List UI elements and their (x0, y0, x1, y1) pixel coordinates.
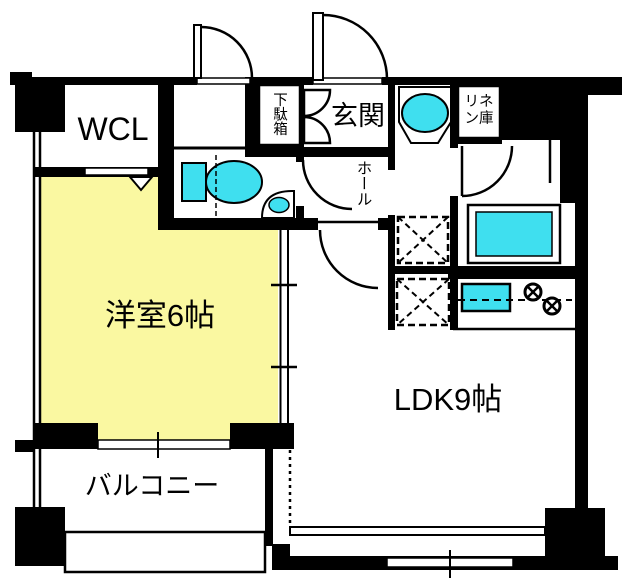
washing-machine-space (398, 217, 448, 263)
wall-segment (500, 77, 622, 95)
entrance-label: 玄関 (331, 101, 385, 131)
hand-basin-bowl (269, 198, 289, 213)
wall-segment (382, 77, 505, 85)
wall-segment (272, 544, 290, 570)
linen-label-line1: リネ (465, 93, 494, 110)
wall-segment (560, 140, 585, 203)
wall-segment (296, 206, 304, 220)
wall-segment (448, 266, 580, 279)
door-leaf (313, 13, 323, 80)
pillar (15, 83, 65, 132)
wall-segment (388, 84, 395, 170)
pillar (15, 507, 65, 566)
bathtub-inner (476, 212, 552, 256)
balcony-railing (65, 532, 265, 572)
door-sill (197, 78, 250, 84)
ldk-label: LDK9帖 (394, 382, 503, 417)
balcony-label: バルコニー (85, 471, 219, 501)
washbasin-bowl (402, 94, 448, 132)
pillar (545, 508, 605, 562)
wall-segment (158, 218, 318, 230)
wall-segment (450, 273, 458, 330)
kitchen-sink (462, 284, 510, 311)
refrigerator-space (397, 279, 449, 325)
wall-segment (296, 147, 395, 157)
toilet-bowl (206, 161, 262, 203)
wcl-label: WCL (77, 111, 148, 147)
door-leaf (194, 25, 201, 78)
hall-label: ホール (355, 160, 372, 207)
toilet-tank (182, 163, 206, 201)
floor-plan: WCL 下駄箱 玄関 ホール リネ ン庫 洋室6帖 LDK9帖 バルコニー (0, 0, 640, 588)
shoe-cabinet-label: 下駄箱 (271, 92, 287, 136)
linen-label-line2: ン庫 (465, 110, 494, 127)
wall-segment (450, 140, 458, 148)
wall-segment (158, 84, 174, 230)
western-room-label: 洋室6帖 (105, 298, 215, 333)
wcl-door-sill (85, 168, 148, 175)
wall-segment (245, 84, 259, 147)
wall-segment (390, 266, 453, 274)
wall-segment (33, 423, 98, 449)
wall-segment (500, 95, 588, 140)
door-sill (318, 219, 378, 229)
ldk-bottom-thin-wall (290, 527, 545, 535)
wall-segment (15, 440, 33, 452)
wall-segment (450, 196, 458, 272)
wall-segment (230, 423, 294, 449)
washbasin-icon (399, 87, 451, 143)
bathtub-icon (468, 205, 560, 263)
bedroom-balcony-window (98, 440, 230, 449)
